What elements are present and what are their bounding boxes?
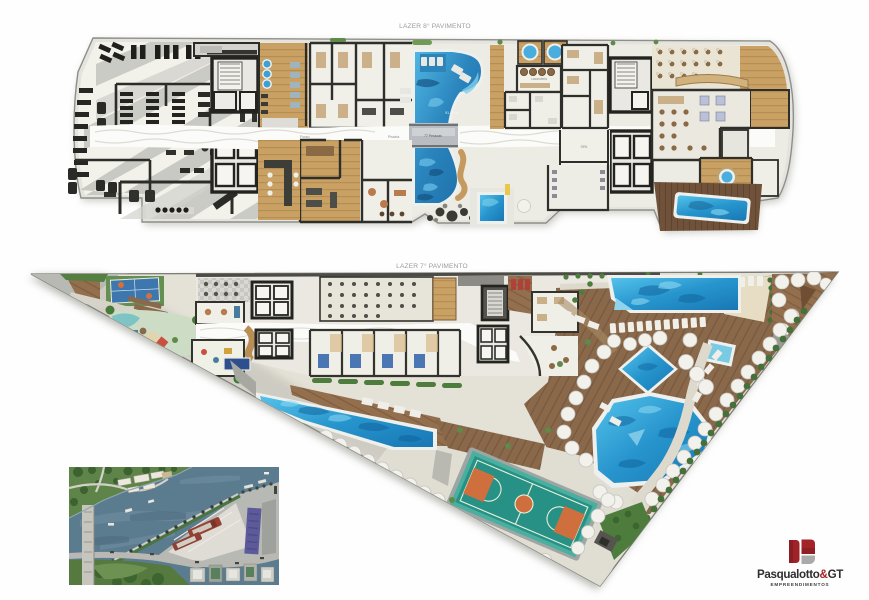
- svg-text:77 Pessoas: 77 Pessoas: [424, 134, 442, 138]
- svg-text:LAZER 7° PAVIMENTO: LAZER 7° PAVIMENTO: [396, 262, 468, 270]
- svg-text:EMPREENDIMENTOS: EMPREENDIMENTOS: [771, 582, 830, 587]
- svg-text:Fosso: Fosso: [300, 135, 310, 139]
- svg-text:LAZER 8° PAVIMENTO: LAZER 8° PAVIMENTO: [399, 22, 471, 30]
- svg-text:Lavanderia: Lavanderia: [531, 77, 547, 81]
- svg-text:Pasqualotto&GT: Pasqualotto&GT: [757, 568, 843, 581]
- svg-text:Piscina: Piscina: [388, 135, 399, 139]
- svg-text:91.34 m²: 91.34 m²: [445, 111, 459, 115]
- svg-text:SPA: SPA: [581, 145, 589, 149]
